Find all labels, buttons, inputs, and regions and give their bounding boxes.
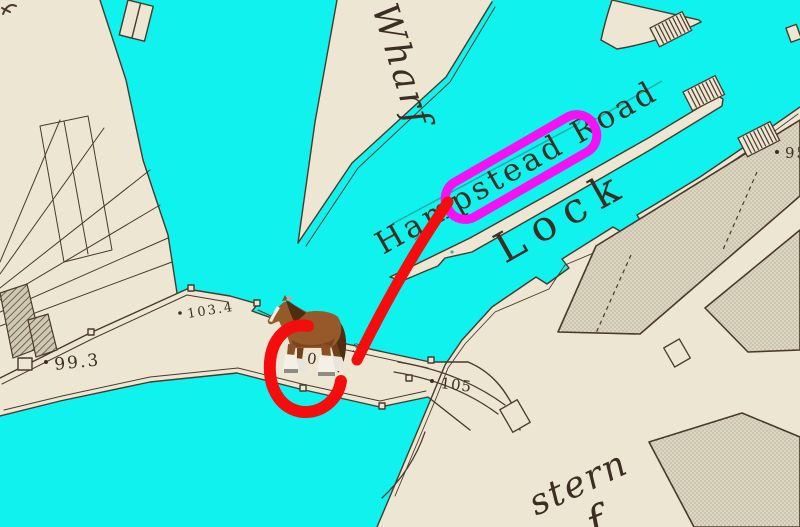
map-canvas[interactable]: Wharf Hampstead Road Lock stern f 103.4 … (0, 0, 800, 527)
spot-height: 105 (440, 374, 474, 396)
spot-height: 95 (785, 144, 800, 162)
